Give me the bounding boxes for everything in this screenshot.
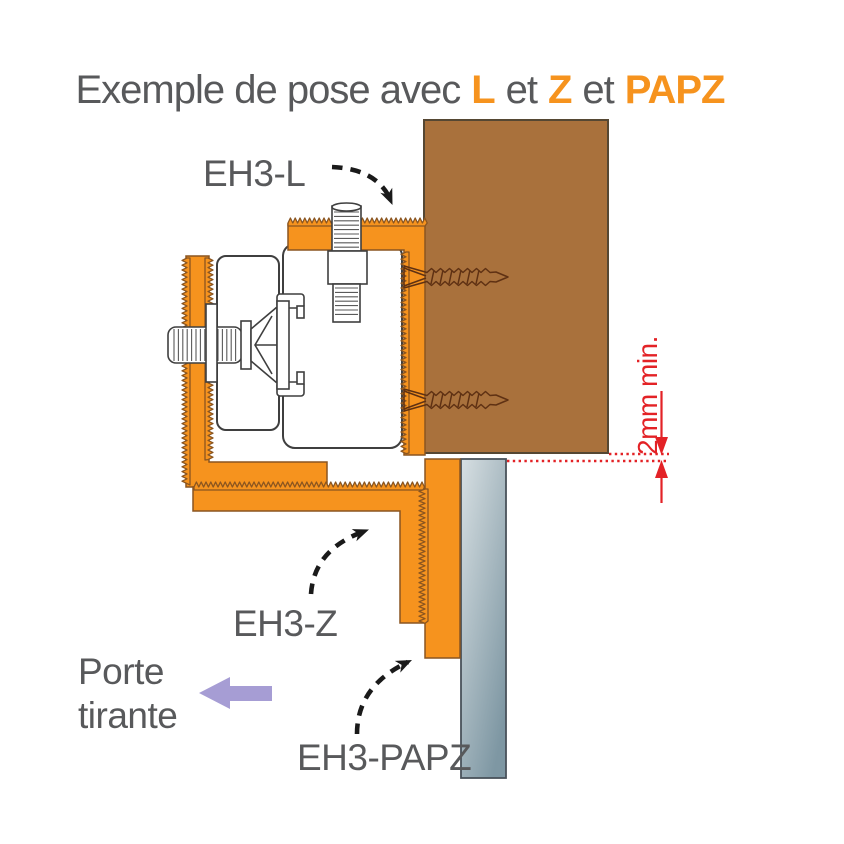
mounting-bracket bbox=[277, 301, 289, 389]
label-eh3-z: EH3-Z bbox=[233, 603, 337, 644]
leader-arrow-l bbox=[332, 167, 391, 201]
label-porte-line2: tirante bbox=[78, 695, 177, 736]
rod-collar bbox=[241, 321, 251, 369]
installation-diagram: 2mm min. EH3-L EH3-Z EH3-PAPZ Porte tira… bbox=[0, 0, 844, 844]
vertical-bolt-lower-threads bbox=[335, 288, 358, 314]
label-eh3-l: EH3-L bbox=[203, 153, 305, 194]
title-item-papz: PAPZ bbox=[625, 68, 725, 112]
dimension-arrow-up bbox=[655, 460, 668, 478]
vertical-bolt-lower bbox=[333, 284, 360, 322]
label-porte-line1: Porte bbox=[78, 651, 164, 692]
title-prefix: Exemple de pose avec bbox=[76, 68, 461, 112]
title-sep1: et bbox=[506, 68, 538, 112]
title-sep2: et bbox=[582, 68, 614, 112]
title-item-l: L bbox=[471, 68, 495, 112]
door-panel bbox=[461, 459, 506, 778]
wood-beam bbox=[424, 120, 608, 453]
serration-z-plate-left bbox=[182, 258, 190, 485]
vertical-bolt-cap bbox=[332, 203, 361, 211]
adjustment-rod-threads bbox=[174, 329, 236, 361]
leader-arrow-papz bbox=[357, 662, 408, 734]
title-item-z: Z bbox=[548, 68, 572, 112]
bracket-hook-top bbox=[297, 306, 304, 318]
bracket-hook-bottom bbox=[297, 372, 304, 384]
leader-arrowhead-z bbox=[352, 523, 372, 541]
bolt-nut-block bbox=[328, 251, 367, 284]
label-eh3-papz: EH3-PAPZ bbox=[297, 737, 471, 778]
diagram-canvas: 2mm min. EH3-L EH3-Z EH3-PAPZ Porte tira… bbox=[0, 0, 844, 844]
plate-papz bbox=[425, 459, 460, 658]
page-title: Exemple de pose avecLetZetPAPZ bbox=[76, 68, 726, 112]
pull-direction-arrow bbox=[199, 677, 272, 709]
vertical-bolt-upper bbox=[332, 206, 361, 251]
dimension-label: 2mm min. bbox=[632, 336, 663, 455]
clamp-washer-plate bbox=[206, 304, 217, 382]
